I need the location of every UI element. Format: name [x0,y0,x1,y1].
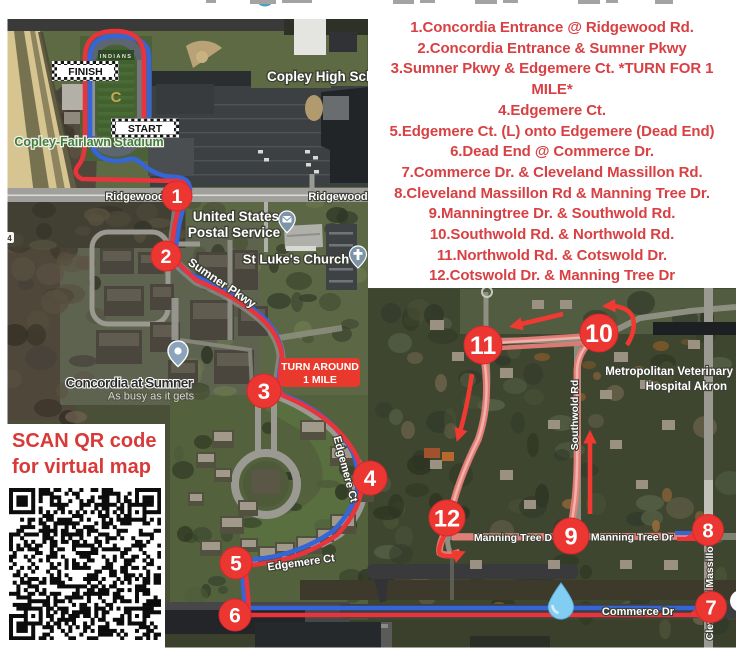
svg-text:Manning Tree D: Manning Tree D [474,532,553,544]
svg-text:United States: United States [193,209,279,224]
svg-text:10: 10 [585,320,613,348]
svg-text:Ridgewood: Ridgewood [308,191,367,203]
svg-text:Postal Service: Postal Service [188,225,281,240]
svg-text:C: C [111,89,122,106]
svg-text:Metropolitan Veterinary: Metropolitan Veterinary [605,366,733,378]
svg-text:8: 8 [702,520,713,542]
svg-text:Hospital Akron: Hospital Akron [646,381,727,393]
svg-text:START: START [128,123,163,135]
svg-text:Concordia at Sumner: Concordia at Sumner [65,376,193,391]
svg-text:3: 3 [258,379,270,404]
svg-text:4: 4 [7,234,12,243]
svg-text:5: 5 [230,553,242,576]
svg-text:Ridgewood: Ridgewood [105,191,164,203]
svg-text:12: 12 [434,507,460,533]
svg-text:Southwold Rd: Southwold Rd [569,380,581,451]
svg-text:Cleveland Massillon: Cleveland Massillon [704,540,716,640]
svg-text:6: 6 [229,605,241,628]
svg-text:2: 2 [161,246,172,268]
svg-text:St Luke's Church: St Luke's Church [243,252,349,267]
svg-text:1 MILE: 1 MILE [303,374,337,386]
svg-text:11: 11 [470,332,496,360]
svg-text:INDIANS: INDIANS [100,54,133,60]
svg-text:FINISH: FINISH [68,66,102,78]
svg-text:As busy as it gets: As busy as it gets [108,391,195,403]
svg-text:Manning Tree Dr: Manning Tree Dr [591,532,673,544]
svg-text:9: 9 [564,525,577,551]
svg-text:1: 1 [172,186,183,208]
svg-text:7: 7 [705,597,716,619]
svg-text:Commerce Dr: Commerce Dr [602,606,675,618]
svg-text:4: 4 [364,466,377,491]
svg-text:TURN AROUND: TURN AROUND [281,361,359,373]
